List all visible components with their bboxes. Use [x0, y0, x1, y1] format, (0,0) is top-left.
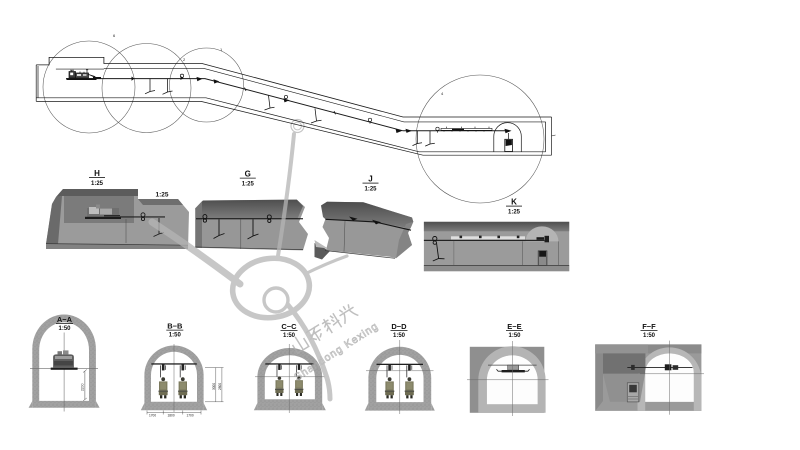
svg-text:1:50: 1:50 — [393, 333, 406, 339]
svg-text:1:25: 1:25 — [155, 192, 168, 199]
svg-text:3000: 3000 — [212, 383, 216, 390]
svg-text:1:50: 1:50 — [283, 333, 296, 339]
svg-text:J: J — [368, 175, 372, 184]
svg-text:1800: 1800 — [168, 414, 175, 418]
svg-text:F−F: F−F — [642, 322, 656, 331]
svg-text:1700: 1700 — [149, 414, 156, 418]
svg-text:A−A: A−A — [57, 315, 73, 324]
svg-text:1:50: 1:50 — [643, 333, 656, 339]
svg-text:D−D: D−D — [391, 322, 407, 331]
svg-text:K: K — [511, 198, 517, 207]
svg-text:1:25: 1:25 — [508, 210, 521, 216]
svg-text:2200: 2200 — [81, 383, 85, 391]
svg-text:1:50: 1:50 — [169, 333, 182, 339]
svg-text:H: H — [94, 169, 100, 178]
svg-text:G: G — [245, 170, 251, 179]
svg-text:1:25: 1:25 — [242, 182, 255, 188]
svg-text:1700: 1700 — [187, 414, 194, 418]
svg-text:1:50: 1:50 — [508, 333, 521, 339]
svg-text:1:25: 1:25 — [364, 187, 377, 193]
svg-text:B−B: B−B — [167, 322, 183, 331]
svg-text:1:25: 1:25 — [91, 181, 104, 187]
svg-text:C−C: C−C — [281, 322, 297, 331]
svg-text:1:50: 1:50 — [58, 326, 71, 332]
svg-text:2800: 2800 — [218, 383, 222, 390]
svg-text:E−E: E−E — [507, 322, 521, 331]
